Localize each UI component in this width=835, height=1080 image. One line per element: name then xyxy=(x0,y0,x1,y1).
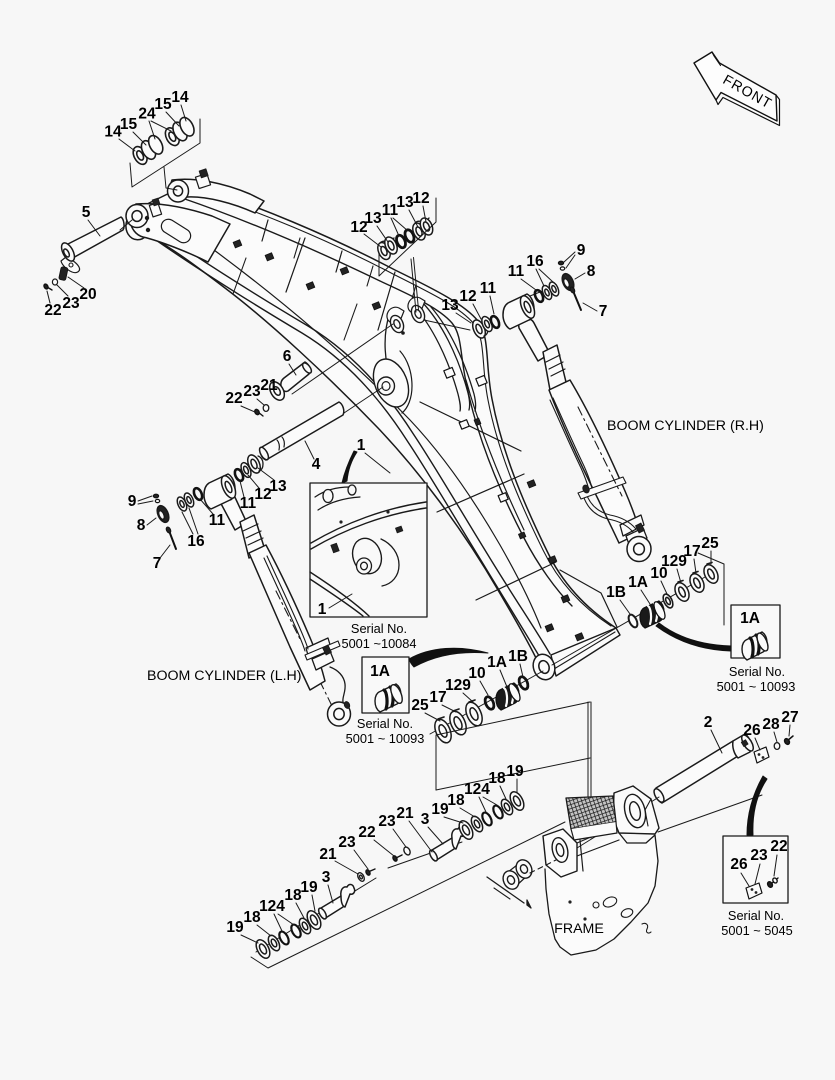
svg-text:17: 17 xyxy=(683,543,700,560)
svg-text:1A: 1A xyxy=(628,574,648,591)
svg-text:8: 8 xyxy=(587,263,596,280)
svg-text:19: 19 xyxy=(300,879,318,896)
svg-text:23: 23 xyxy=(378,813,396,830)
svg-text:21: 21 xyxy=(260,377,278,394)
svg-text:Serial No.: Serial No. xyxy=(351,621,407,636)
svg-text:5: 5 xyxy=(82,204,91,221)
svg-text:13: 13 xyxy=(441,297,459,314)
svg-text:26: 26 xyxy=(730,856,748,873)
svg-text:1: 1 xyxy=(357,437,366,454)
svg-text:21: 21 xyxy=(319,846,337,863)
svg-text:BOOM CYLINDER (L.H): BOOM CYLINDER (L.H) xyxy=(147,668,302,684)
svg-text:124: 124 xyxy=(259,898,285,915)
svg-text:23: 23 xyxy=(750,847,768,864)
svg-text:26: 26 xyxy=(743,722,761,739)
svg-text:23: 23 xyxy=(62,295,80,312)
svg-text:BOOM CYLINDER (R.H): BOOM CYLINDER (R.H) xyxy=(607,418,764,434)
svg-text:16: 16 xyxy=(526,253,544,270)
svg-text:4: 4 xyxy=(312,456,321,473)
svg-text:22: 22 xyxy=(44,302,61,319)
svg-text:25: 25 xyxy=(411,697,429,714)
svg-text:11: 11 xyxy=(508,263,525,280)
svg-text:1A: 1A xyxy=(487,654,507,671)
svg-text:3: 3 xyxy=(421,811,430,828)
svg-text:21: 21 xyxy=(396,805,414,822)
svg-text:2: 2 xyxy=(704,714,713,731)
svg-text:1B: 1B xyxy=(606,584,626,601)
svg-text:5001 ~ 10093: 5001 ~ 10093 xyxy=(346,731,425,746)
svg-text:14: 14 xyxy=(171,89,189,106)
svg-text:18: 18 xyxy=(447,792,465,809)
svg-text:19: 19 xyxy=(226,919,244,936)
svg-text:Serial No.: Serial No. xyxy=(357,716,413,731)
svg-text:22: 22 xyxy=(358,824,375,841)
svg-text:1A: 1A xyxy=(370,663,390,680)
svg-text:18: 18 xyxy=(284,887,302,904)
svg-text:18: 18 xyxy=(488,770,506,787)
svg-text:3: 3 xyxy=(322,869,331,886)
svg-text:Serial No.: Serial No. xyxy=(728,908,784,923)
svg-text:Serial No.: Serial No. xyxy=(729,664,785,679)
svg-text:6: 6 xyxy=(283,348,292,365)
svg-text:1B: 1B xyxy=(508,648,528,665)
svg-text:10: 10 xyxy=(468,665,485,682)
svg-text:5001 ~ 5045: 5001 ~ 5045 xyxy=(721,923,793,938)
svg-text:FRAME: FRAME xyxy=(554,921,604,937)
svg-text:9: 9 xyxy=(128,493,137,510)
svg-text:9: 9 xyxy=(577,242,586,259)
svg-text:22: 22 xyxy=(225,390,242,407)
svg-text:19: 19 xyxy=(431,801,449,818)
svg-text:16: 16 xyxy=(187,533,205,550)
svg-text:124: 124 xyxy=(464,781,490,798)
svg-text:7: 7 xyxy=(599,303,608,320)
svg-text:15: 15 xyxy=(154,96,172,113)
svg-text:5001 ~10084: 5001 ~10084 xyxy=(341,636,416,651)
svg-text:19: 19 xyxy=(506,763,524,780)
svg-text:15: 15 xyxy=(120,116,138,133)
svg-text:25: 25 xyxy=(701,535,719,552)
svg-text:24: 24 xyxy=(138,106,156,123)
svg-text:13: 13 xyxy=(396,194,414,211)
svg-text:1: 1 xyxy=(318,601,327,618)
svg-text:12: 12 xyxy=(412,190,429,207)
svg-text:129: 129 xyxy=(445,677,471,694)
svg-text:23: 23 xyxy=(243,383,261,400)
svg-text:28: 28 xyxy=(762,716,780,733)
svg-text:13: 13 xyxy=(364,210,382,227)
svg-text:11: 11 xyxy=(209,512,226,529)
svg-text:1A: 1A xyxy=(740,610,760,627)
svg-text:12: 12 xyxy=(459,288,476,305)
svg-text:20: 20 xyxy=(79,286,96,303)
svg-text:23: 23 xyxy=(338,834,356,851)
svg-text:27: 27 xyxy=(781,709,798,726)
svg-text:11: 11 xyxy=(480,280,497,297)
svg-text:13: 13 xyxy=(269,478,287,495)
svg-text:22: 22 xyxy=(770,838,787,855)
svg-text:17: 17 xyxy=(429,689,446,706)
svg-text:8: 8 xyxy=(137,517,146,534)
svg-text:5001 ~ 10093: 5001 ~ 10093 xyxy=(717,679,796,694)
